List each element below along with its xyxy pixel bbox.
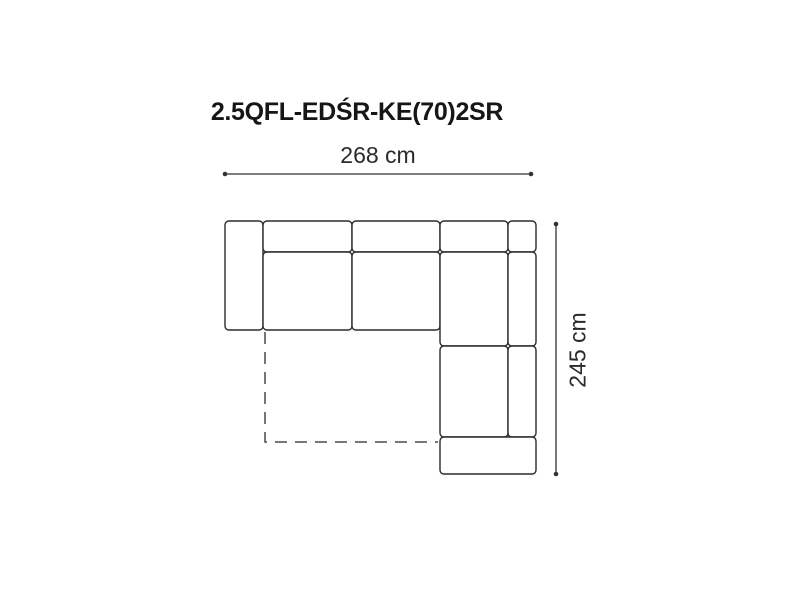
sofa-piece-right-backrest-lower [508, 346, 536, 437]
sofa-piece-bottom-armrest [440, 437, 536, 474]
sofa-piece-seat-1 [263, 252, 352, 330]
sofa-piece-right-seat [440, 346, 508, 437]
sofa-piece-corner-seat [440, 252, 508, 346]
depth-dimension-endpoint-dot [554, 222, 559, 227]
sofa-piece-backrest-1 [263, 221, 352, 252]
sofa-piece-corner-backrest [440, 221, 508, 252]
depth-dimension-endpoint-dot [554, 472, 559, 477]
sofa-piece-left-armrest [225, 221, 263, 330]
sofa-diagram [0, 0, 800, 600]
sofa-piece-corner-side-piece [508, 221, 536, 252]
sofa-piece-right-backrest-upper [508, 252, 536, 346]
diagram-canvas: 2.5QFL-EDŚR-KE(70)2SR 268 cm 245 cm [0, 0, 800, 600]
width-dimension-endpoint-dot [529, 172, 534, 177]
width-dimension-endpoint-dot [223, 172, 228, 177]
sofa-piece-backrest-2 [352, 221, 440, 252]
sofa-piece-seat-2 [352, 252, 440, 330]
sleeping-extension-dashed-outline [265, 332, 438, 442]
